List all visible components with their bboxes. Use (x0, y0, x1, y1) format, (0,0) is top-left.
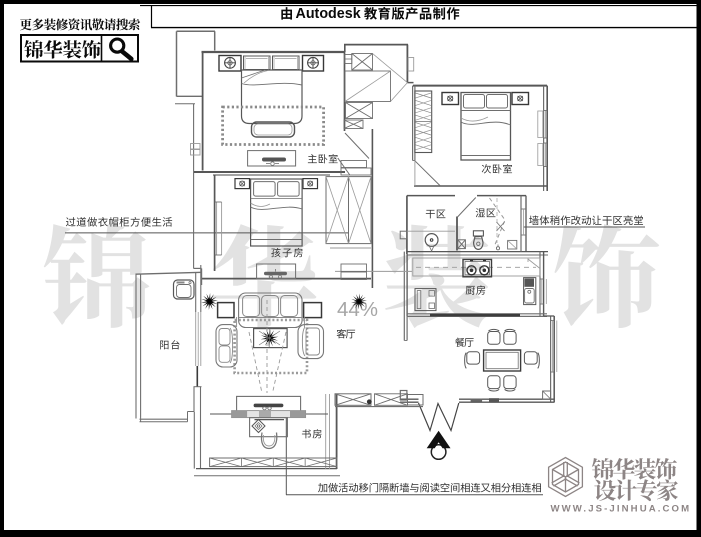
svg-text:Autodesk: Autodesk (296, 6, 361, 22)
svg-text:WWW.JS-JINHUA.COM: WWW.JS-JINHUA.COM (551, 504, 692, 515)
